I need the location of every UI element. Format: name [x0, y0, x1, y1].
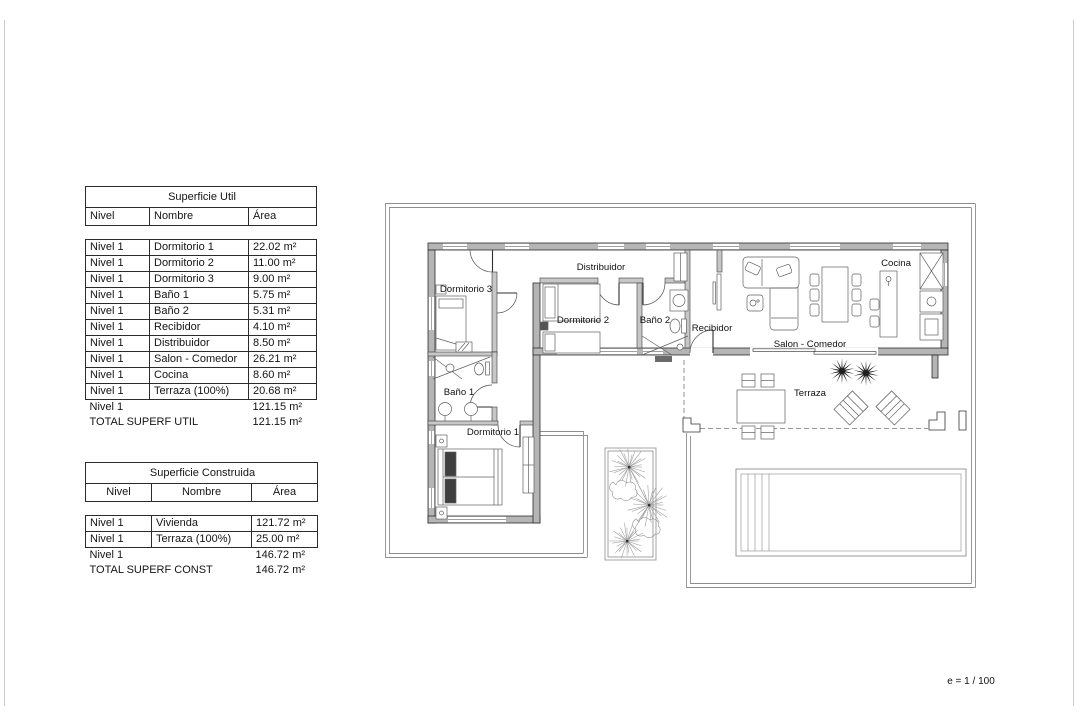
- distribuidor-closet: [674, 253, 687, 281]
- room-label-bano-1: Baño 1: [444, 387, 474, 398]
- subtotal-row: Nivel 1121.15 m²: [86, 400, 317, 416]
- dormitorio1-furniture: [436, 435, 534, 519]
- table-row: Nivel 1Vivienda121.72 m²: [86, 516, 318, 532]
- terrace-dining: [737, 374, 785, 439]
- total-row: TOTAL SUPERF UTIL121.15 m²: [86, 415, 317, 430]
- col-header-nombre: Nombre: [150, 208, 249, 226]
- sofa: [743, 257, 799, 330]
- col-header-nombre: Nombre: [152, 484, 252, 502]
- plan-sheet: Distribuidor Dormitorio 3 Dormitorio 2 B…: [0, 0, 1080, 720]
- lounge-chair: [834, 391, 868, 425]
- table-row: Nivel 1Recibidor4.10 m²: [86, 320, 317, 336]
- garden-trees: [609, 449, 667, 558]
- room-label-dormitorio-1: Dormitorio 1: [467, 427, 519, 438]
- table-title: Superficie Util: [86, 187, 317, 208]
- table-title: Superficie Construida: [86, 463, 318, 484]
- tv-unit: [713, 274, 721, 310]
- plant-icon: [829, 358, 854, 384]
- table-row: Nivel 1Dormitorio 211.00 m²: [86, 256, 317, 272]
- col-header-area: Área: [252, 484, 318, 502]
- col-header-area: Área: [249, 208, 317, 226]
- kitchen-island: [870, 271, 897, 337]
- table-row: Nivel 1Terraza (100%)20.68 m²: [86, 384, 317, 400]
- entry-step: [655, 356, 672, 362]
- room-label-recibidor: Recibidor: [692, 323, 733, 334]
- table-row: Nivel 1Cocina8.60 m²: [86, 368, 317, 384]
- scale-note: e = 1 / 100: [947, 676, 995, 687]
- dormitorio3-furniture: [436, 285, 472, 352]
- terrace-corner-left: [683, 418, 700, 432]
- kitchen-counter: [920, 253, 943, 340]
- tree-icon: [610, 449, 646, 487]
- room-label-dormitorio-2: Dormitorio 2: [557, 315, 609, 326]
- table-row: Nivel 1Baño 15.75 m²: [86, 288, 317, 304]
- tree-icon: [628, 485, 667, 527]
- table-row: Nivel 1Dormitorio 122.02 m²: [86, 240, 317, 256]
- terrace-plants: [829, 358, 878, 386]
- lounge-chair: [876, 391, 910, 425]
- table-superficie-construida: Superficie Construida Nivel Nombre Área …: [85, 462, 318, 578]
- pool-steps: [748, 474, 769, 551]
- col-header-nivel: Nivel: [86, 208, 150, 226]
- table-superficie-util: Superficie Util Nivel Nombre Área Nivel …: [85, 186, 317, 430]
- table-row: Nivel 1Dormitorio 39.00 m²: [86, 272, 317, 288]
- pool: [736, 469, 966, 556]
- room-label-bano-2: Baño 2: [640, 315, 670, 326]
- table-row: Nivel 1Baño 25.31 m²: [86, 304, 317, 320]
- plant-icon: [853, 360, 878, 386]
- col-header-nivel: Nivel: [86, 484, 152, 502]
- room-label-cocina: Cocina: [881, 258, 912, 269]
- room-label-dormitorio-3: Dormitorio 3: [440, 284, 492, 295]
- room-label-distribuidor: Distribuidor: [577, 262, 626, 273]
- table-row: Nivel 1Terraza (100%)25.00 m²: [86, 532, 318, 548]
- table-row: Nivel 1Distribuidor8.50 m²: [86, 336, 317, 352]
- total-row: TOTAL SUPERF CONST146.72 m²: [86, 563, 318, 578]
- coffee-table: [747, 295, 763, 311]
- dining-set: [810, 267, 861, 322]
- room-label-terraza: Terraza: [794, 388, 827, 399]
- terrace-corner-right: [929, 412, 945, 430]
- room-label-salon-comedor: Salon - Comedor: [774, 339, 847, 350]
- subtotal-row: Nivel 1146.72 m²: [86, 548, 318, 564]
- shrub-icon: [610, 481, 638, 501]
- table-row: Nivel 1Salon - Comedor26.21 m²: [86, 352, 317, 368]
- boundary-marker: [959, 411, 966, 430]
